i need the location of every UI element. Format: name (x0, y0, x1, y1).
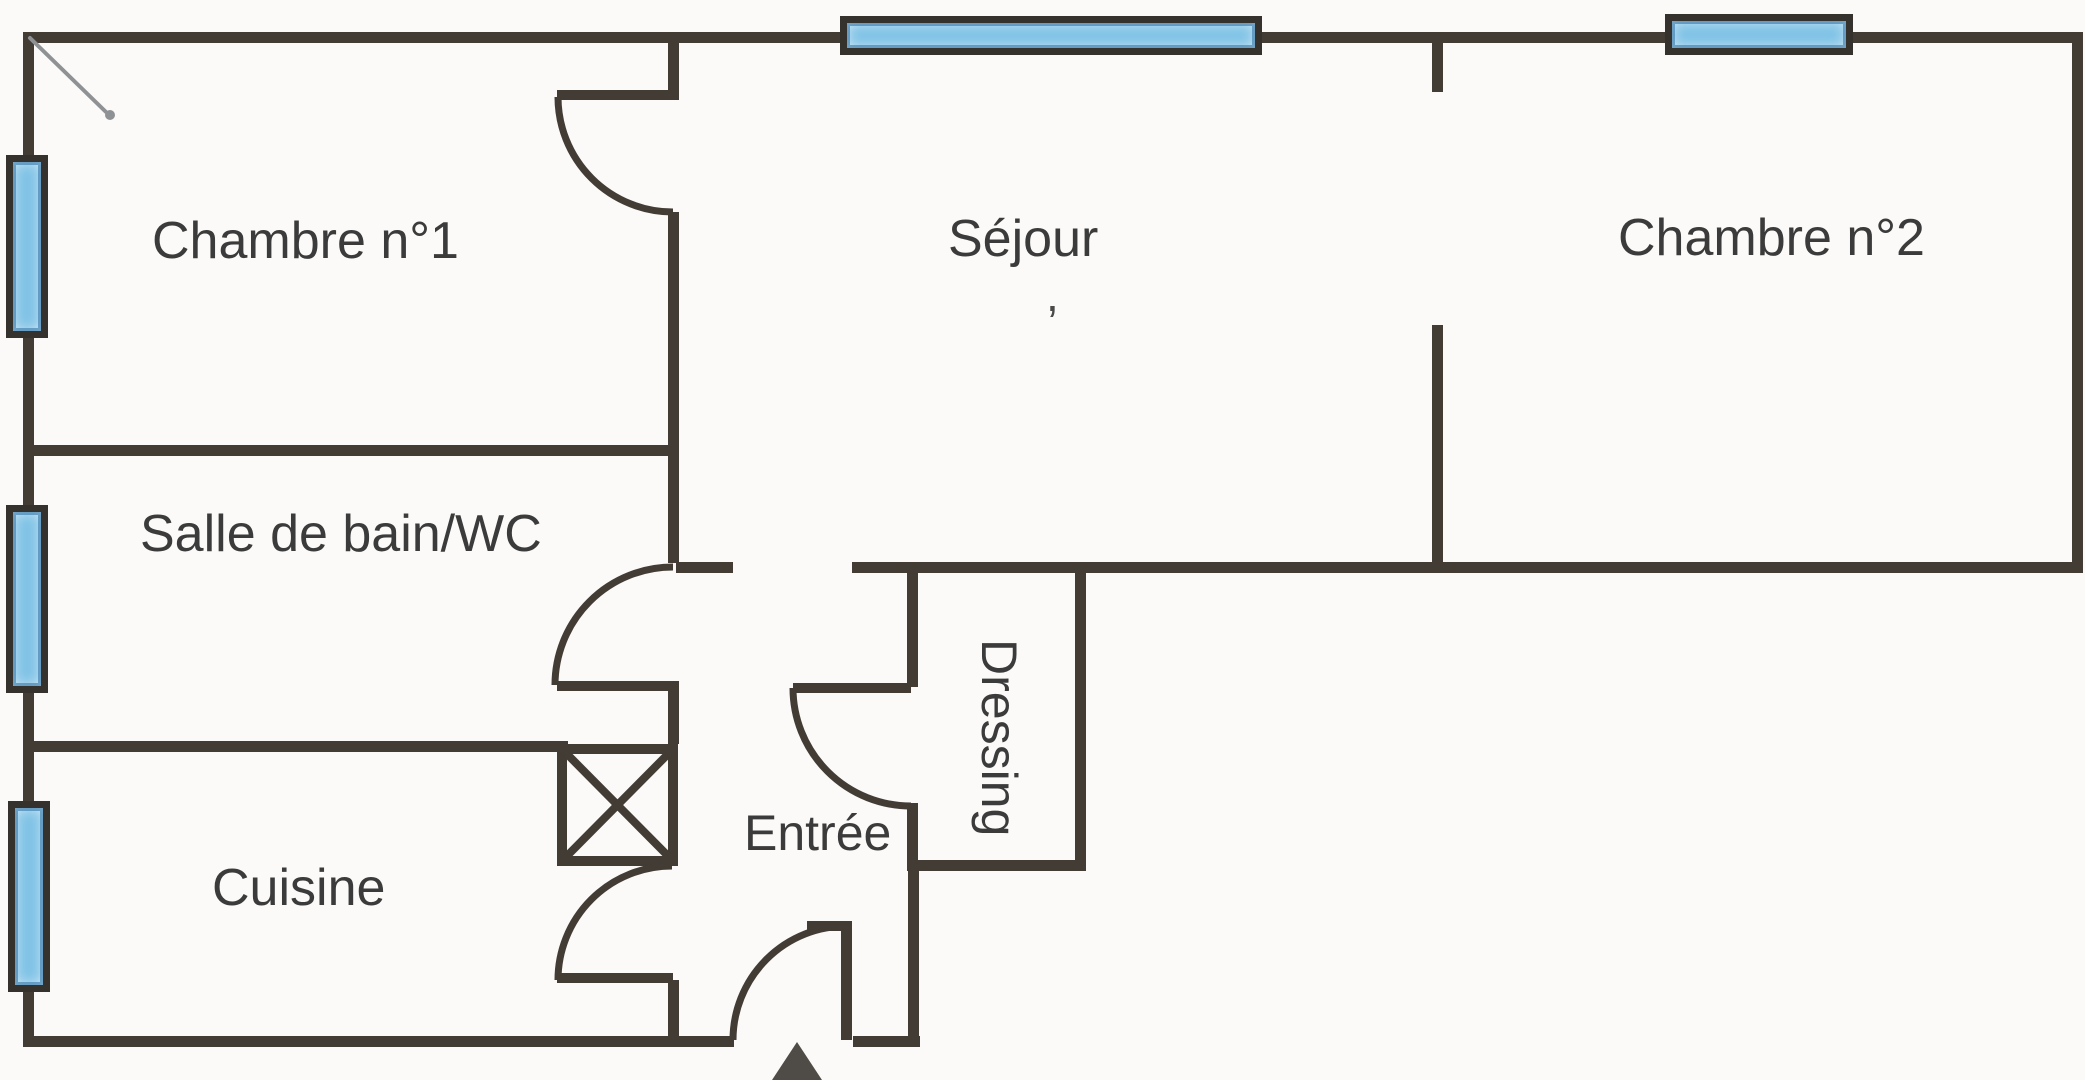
door-entree-front-leaf (841, 921, 852, 1040)
door-entree-front-arc (733, 926, 847, 1040)
door-salle-de-bain-leaf (557, 681, 679, 691)
wall-sejour-chambre2-bottom (852, 562, 2083, 573)
window-left-3 (8, 801, 50, 992)
floor-plan: Chambre n°1 Séjour Chambre n°2 Salle de … (0, 0, 2085, 1080)
wall-sdb-cuisine-divider (23, 741, 568, 752)
wall-below-cuisine-door (668, 980, 679, 1047)
window-left-2 (6, 505, 48, 693)
wall-dressing-right (1075, 562, 1086, 871)
room-label-chambre2: Chambre n°2 (1618, 210, 1925, 266)
door-cuisine-arc (558, 866, 672, 980)
scan-apostrophe-mark: , (1046, 268, 1059, 322)
pencil-scratch-line (30, 38, 106, 112)
door-dressing-leaf (793, 683, 911, 693)
wall-chambre2-stub-top (1432, 32, 1443, 92)
window-top-chambre2 (1665, 14, 1853, 55)
door-chambre1-arc (558, 97, 673, 212)
wall-entree-right (908, 860, 919, 1047)
wall-below-sdb-door (668, 685, 679, 744)
wall-dressing-left-top (907, 562, 918, 687)
room-label-sejour: Séjour (948, 211, 1098, 267)
pencil-scratch-dot (105, 110, 115, 120)
duct-shaft-box (557, 744, 678, 866)
room-label-cuisine: Cuisine (212, 860, 385, 916)
door-dressing-arc (793, 688, 911, 806)
wall-dressing-bottom (908, 860, 1086, 871)
entrance-arrow-icon (772, 1042, 822, 1080)
room-label-entree: Entrée (744, 806, 891, 860)
window-left-1 (6, 155, 48, 338)
door-cuisine-leaf (557, 973, 673, 983)
room-label-salle-de-bain: Salle de bain/WC (140, 506, 542, 562)
wall-chambre1-sdb-divider (23, 445, 679, 456)
wall-right (2072, 32, 2083, 568)
door-entree-front-leaf-tick (807, 921, 852, 931)
window-top-sejour (840, 16, 1262, 55)
room-label-chambre1: Chambre n°1 (152, 213, 459, 269)
room-label-dressing: Dressing (974, 639, 1026, 829)
wall-bottom-left (23, 1036, 734, 1047)
wall-chambre2-main (1432, 325, 1443, 568)
door-chambre1-leaf (557, 90, 679, 100)
wall-chambre1-sejour-main (668, 212, 679, 563)
wall-chambre1-sejour-stub-top (668, 32, 679, 92)
door-salle-de-bain-arc (555, 567, 673, 685)
wall-sejour-bottom-stub (676, 562, 733, 573)
